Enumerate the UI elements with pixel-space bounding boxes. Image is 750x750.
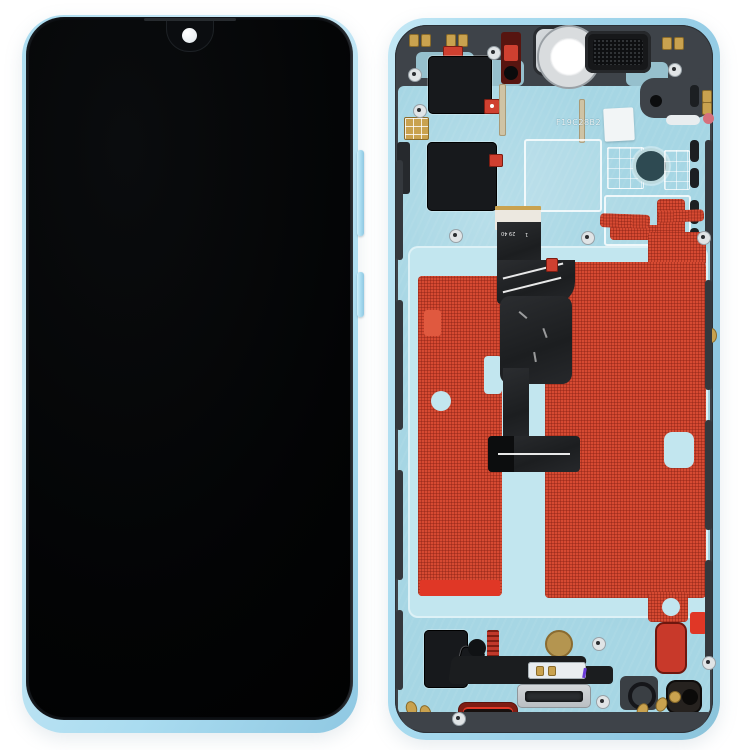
frame-edge-segment xyxy=(396,470,403,580)
volume-button xyxy=(357,150,364,236)
frame-edge-segment xyxy=(705,140,712,240)
flex-cable-neck xyxy=(503,368,529,444)
flex-trace xyxy=(533,352,537,362)
flex-marking: 1 xyxy=(525,231,528,237)
screw xyxy=(449,229,463,243)
sensor-flex-module xyxy=(501,32,521,84)
red-flex-connector xyxy=(489,154,503,167)
sensor-lens xyxy=(504,66,518,80)
gold-mesh-circle xyxy=(545,630,573,658)
antenna-slot xyxy=(690,85,699,107)
jack-hole xyxy=(682,689,698,705)
product-photo: F19C28B2 F xyxy=(0,0,750,750)
flex-connector-end xyxy=(488,436,580,472)
earpiece-speaker-module xyxy=(585,31,651,73)
gold-screw xyxy=(669,691,681,703)
frame-edge-segment xyxy=(396,300,403,430)
bright-red-strip xyxy=(420,580,500,596)
red-sensor-window xyxy=(504,45,518,61)
adhesive-hole xyxy=(662,598,680,616)
gold-contact-pad xyxy=(421,34,431,47)
bottom-frame-band xyxy=(400,712,708,730)
phone-front xyxy=(22,15,358,733)
earpiece-slit xyxy=(144,18,236,21)
waterdrop-notch xyxy=(166,19,214,52)
frame-edge-segment xyxy=(705,280,712,390)
red-adhesive-stripe xyxy=(600,213,650,229)
red-adhesive-foot xyxy=(648,592,688,622)
screw xyxy=(487,46,501,60)
screw xyxy=(413,104,427,118)
frame-edge-segment xyxy=(705,560,712,660)
front-bezel xyxy=(26,17,353,720)
pink-seal-dot xyxy=(703,113,714,124)
gold-contact-pad xyxy=(536,666,544,676)
white-component xyxy=(666,115,700,125)
frame-edge-segment xyxy=(396,160,403,260)
adhesive-hole xyxy=(431,391,451,411)
earpiece-mesh xyxy=(593,39,643,65)
adhesive-dot xyxy=(468,639,486,657)
connector-stripe xyxy=(498,453,570,455)
graphite-pad xyxy=(428,56,492,114)
red-adhesive-stripe xyxy=(658,209,704,223)
adhesive-cutout xyxy=(664,432,694,468)
flex-trace xyxy=(519,311,528,319)
gold-contact-pad xyxy=(409,34,419,47)
screw xyxy=(408,68,422,82)
etched-serial-code: F19C28B2 xyxy=(556,118,601,127)
power-button xyxy=(357,272,364,317)
headphone-jack-grommet xyxy=(666,680,702,714)
screw xyxy=(581,231,595,245)
frame-edge-segment xyxy=(396,610,403,690)
screw xyxy=(592,637,606,651)
charging-port-bracket xyxy=(517,684,591,708)
frame-edge-segment xyxy=(705,420,712,530)
screw xyxy=(596,695,610,709)
red-gasket-part xyxy=(655,622,687,674)
sim-reader-component xyxy=(528,662,586,679)
etched-grid-pattern xyxy=(664,150,690,190)
display-screen xyxy=(29,20,350,717)
white-qc-sticker xyxy=(603,107,635,142)
phone-rear-frame: F19C28B2 F xyxy=(388,18,720,740)
gold-contact-pad xyxy=(662,37,672,50)
front-camera-icon xyxy=(182,28,197,43)
adhesive-tab xyxy=(424,310,441,336)
gold-contact-block xyxy=(404,117,429,140)
screw xyxy=(702,656,716,670)
usb-port-slot xyxy=(525,691,583,702)
screw xyxy=(452,712,466,726)
red-flex-connector xyxy=(484,99,500,114)
gold-contact-pad xyxy=(674,37,684,50)
screw xyxy=(697,231,711,245)
microphone-hole xyxy=(650,95,662,107)
flex-marking: 29 40 xyxy=(501,230,515,236)
gold-contact-pad xyxy=(548,666,556,676)
antenna-strip xyxy=(499,84,506,136)
screw xyxy=(668,63,682,77)
antenna-slot xyxy=(690,140,699,162)
etched-square-outline xyxy=(524,139,602,212)
antenna-slot xyxy=(690,168,699,188)
connector-dot xyxy=(490,104,494,108)
graphite-pad xyxy=(427,142,497,211)
flex-trace xyxy=(542,328,547,338)
red-flex-connector xyxy=(546,258,558,272)
